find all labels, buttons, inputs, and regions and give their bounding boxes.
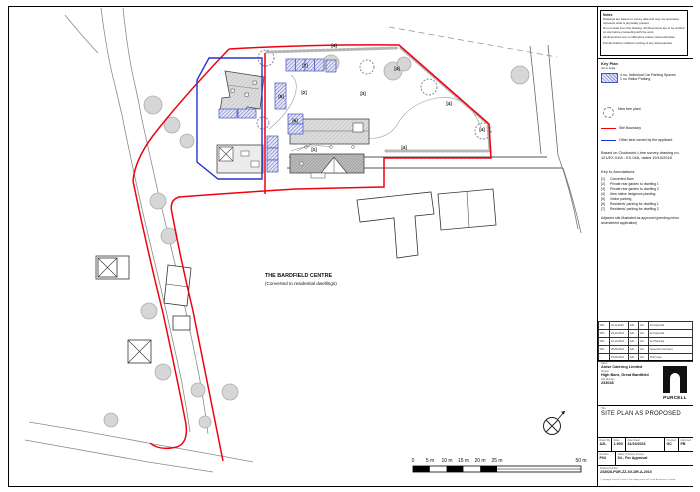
annotation-item: [7]Residents' parking for dwelling 2 [601,207,690,212]
scale-tick-5: 5 m [426,458,434,464]
label-6: [6] [292,118,298,123]
key-plan-subtitle: not to scale [601,66,690,70]
label-4d: [4] [479,127,485,132]
label-4c: [4] [446,101,452,106]
site-boundary-red [133,45,491,461]
new-tree-icon [603,107,614,118]
legend-site-boundary: Site Boundary [601,126,690,130]
other-land-swatch [601,140,616,141]
annotations-title: Key to Annotations [601,169,690,174]
adjacent-site-note: Adjacent site illustrated as approved (p… [601,216,690,225]
revision-row: P0210-10-2023AZLGCFor Planning [599,338,693,346]
bardfield-line1: THE BARDFIELD CENTRE [265,273,332,279]
legend-parking: 4 no. Individual Car Parking Spaces 1 no… [601,73,690,83]
revision-table: P0401-11-2023AZLGCFor Approval P0324-10-… [598,321,693,362]
label-2: [2] [301,90,307,95]
note-line: All dimensions are in millimetres unless… [603,36,685,40]
title-label: Title [601,407,690,410]
note-line: Purcell shall be notified in writing of … [603,42,685,46]
drawing-title-area: Title SITE PLAN AS PROPOSED [598,405,693,418]
scale-tick-10: 10 m [441,458,452,464]
bardfield-caption: THE BARDFIELD CENTRE (Converted to resid… [265,273,337,286]
parking-swatch [601,73,618,83]
bardfield-line2: (Converted to residential dwellings) [265,281,337,286]
existing-house [220,71,264,115]
scale-tick-20: 20 m [474,458,485,464]
purcell-logo-word: PURCELL [660,395,690,400]
label-3: [3] [360,91,366,96]
scale-bar: 0 5 m 10 m 15 m 20 m 25 m 50 m [412,458,587,472]
label-4b: [4] [394,66,400,71]
scale-tick-0: 0 [412,458,415,464]
note-line: Drawings are based on survey data and ma… [603,18,685,25]
drawing-number: 233028-PUR-ZZ-XX-DR-A-2010 [600,470,691,474]
label-7: [7] [302,63,308,68]
status-value: S4 - For Approval [618,456,692,460]
checked-value: GC [667,442,677,446]
legend-new-tree: New tree plant [601,107,690,118]
parking-label-2: 1 no Visitor Parking [620,77,650,81]
title-block: Notes Drawings are based on survey data … [597,7,693,486]
label-5: [5] [278,94,284,99]
revision-row: P0324-10-2023AZLGCFor Approval [599,330,693,338]
drawing-title: SITE PLAN AS PROPOSED [601,411,690,417]
revision-row: P0401-11-2023AZLGCFor Approval [599,322,693,330]
revision-value: P04 [600,456,614,460]
notes-title: Notes [603,13,685,17]
scale-tick-25: 25 m [491,458,502,464]
drawn-value: AZL [600,442,610,446]
purcell-logo-icon [663,366,687,393]
legend-other-land: Other land owned by the applicant. [601,138,690,142]
north-arrow-icon [544,411,566,435]
label-4e: [4] [401,145,407,150]
key-plan-panel: Key Plan not to scale 4 no. Individual C… [598,58,693,321]
bardfield-centre-buildings [357,189,496,258]
other-land-label: Other land owned by the applicant. [619,138,673,142]
existing-house-2 [217,145,263,173]
date-value: 31/10/2023 [628,442,663,446]
revision-row: P0128-09-2023AZLGCIssued for Comment [599,346,693,354]
site-boundary-label: Site Boundary [619,126,641,130]
new-tree-label: New tree plant [618,107,641,111]
scale-tick-50: 50 m [575,458,586,464]
existing-trees [104,55,529,428]
label-4a: [4] [331,43,337,48]
project-info-panel: Client Anise Catering Limited Project Hi… [598,360,693,438]
road-lines [25,8,581,472]
survey-note: Based on Clockwork Lime survey drawing n… [601,150,690,160]
note-line: Do not scale from this drawing. All dime… [603,27,685,34]
notes-panel: Notes Drawings are based on survey data … [600,10,688,56]
label-1: [1] [311,147,317,152]
copyright-line: © copyright Purcell. Purcell is the trad… [598,478,693,483]
site-boundary-swatch [601,128,616,129]
drawing-sheet: [7] [5] [6] [2] [3] [1] [4] [4] [4] [4] … [8,6,693,487]
approved-value: PB [681,442,692,446]
purcell-logo: PURCELL [660,366,690,400]
scale-tick-15: 15 m [458,458,469,464]
site-plan-canvas: [7] [5] [6] [2] [3] [1] [4] [4] [4] [4] … [9,7,597,486]
meta-panel: Drawn ByAZL Scale1:500 Date Drawn31/10/2… [598,437,693,487]
scale-value: 1:500 [614,442,624,446]
